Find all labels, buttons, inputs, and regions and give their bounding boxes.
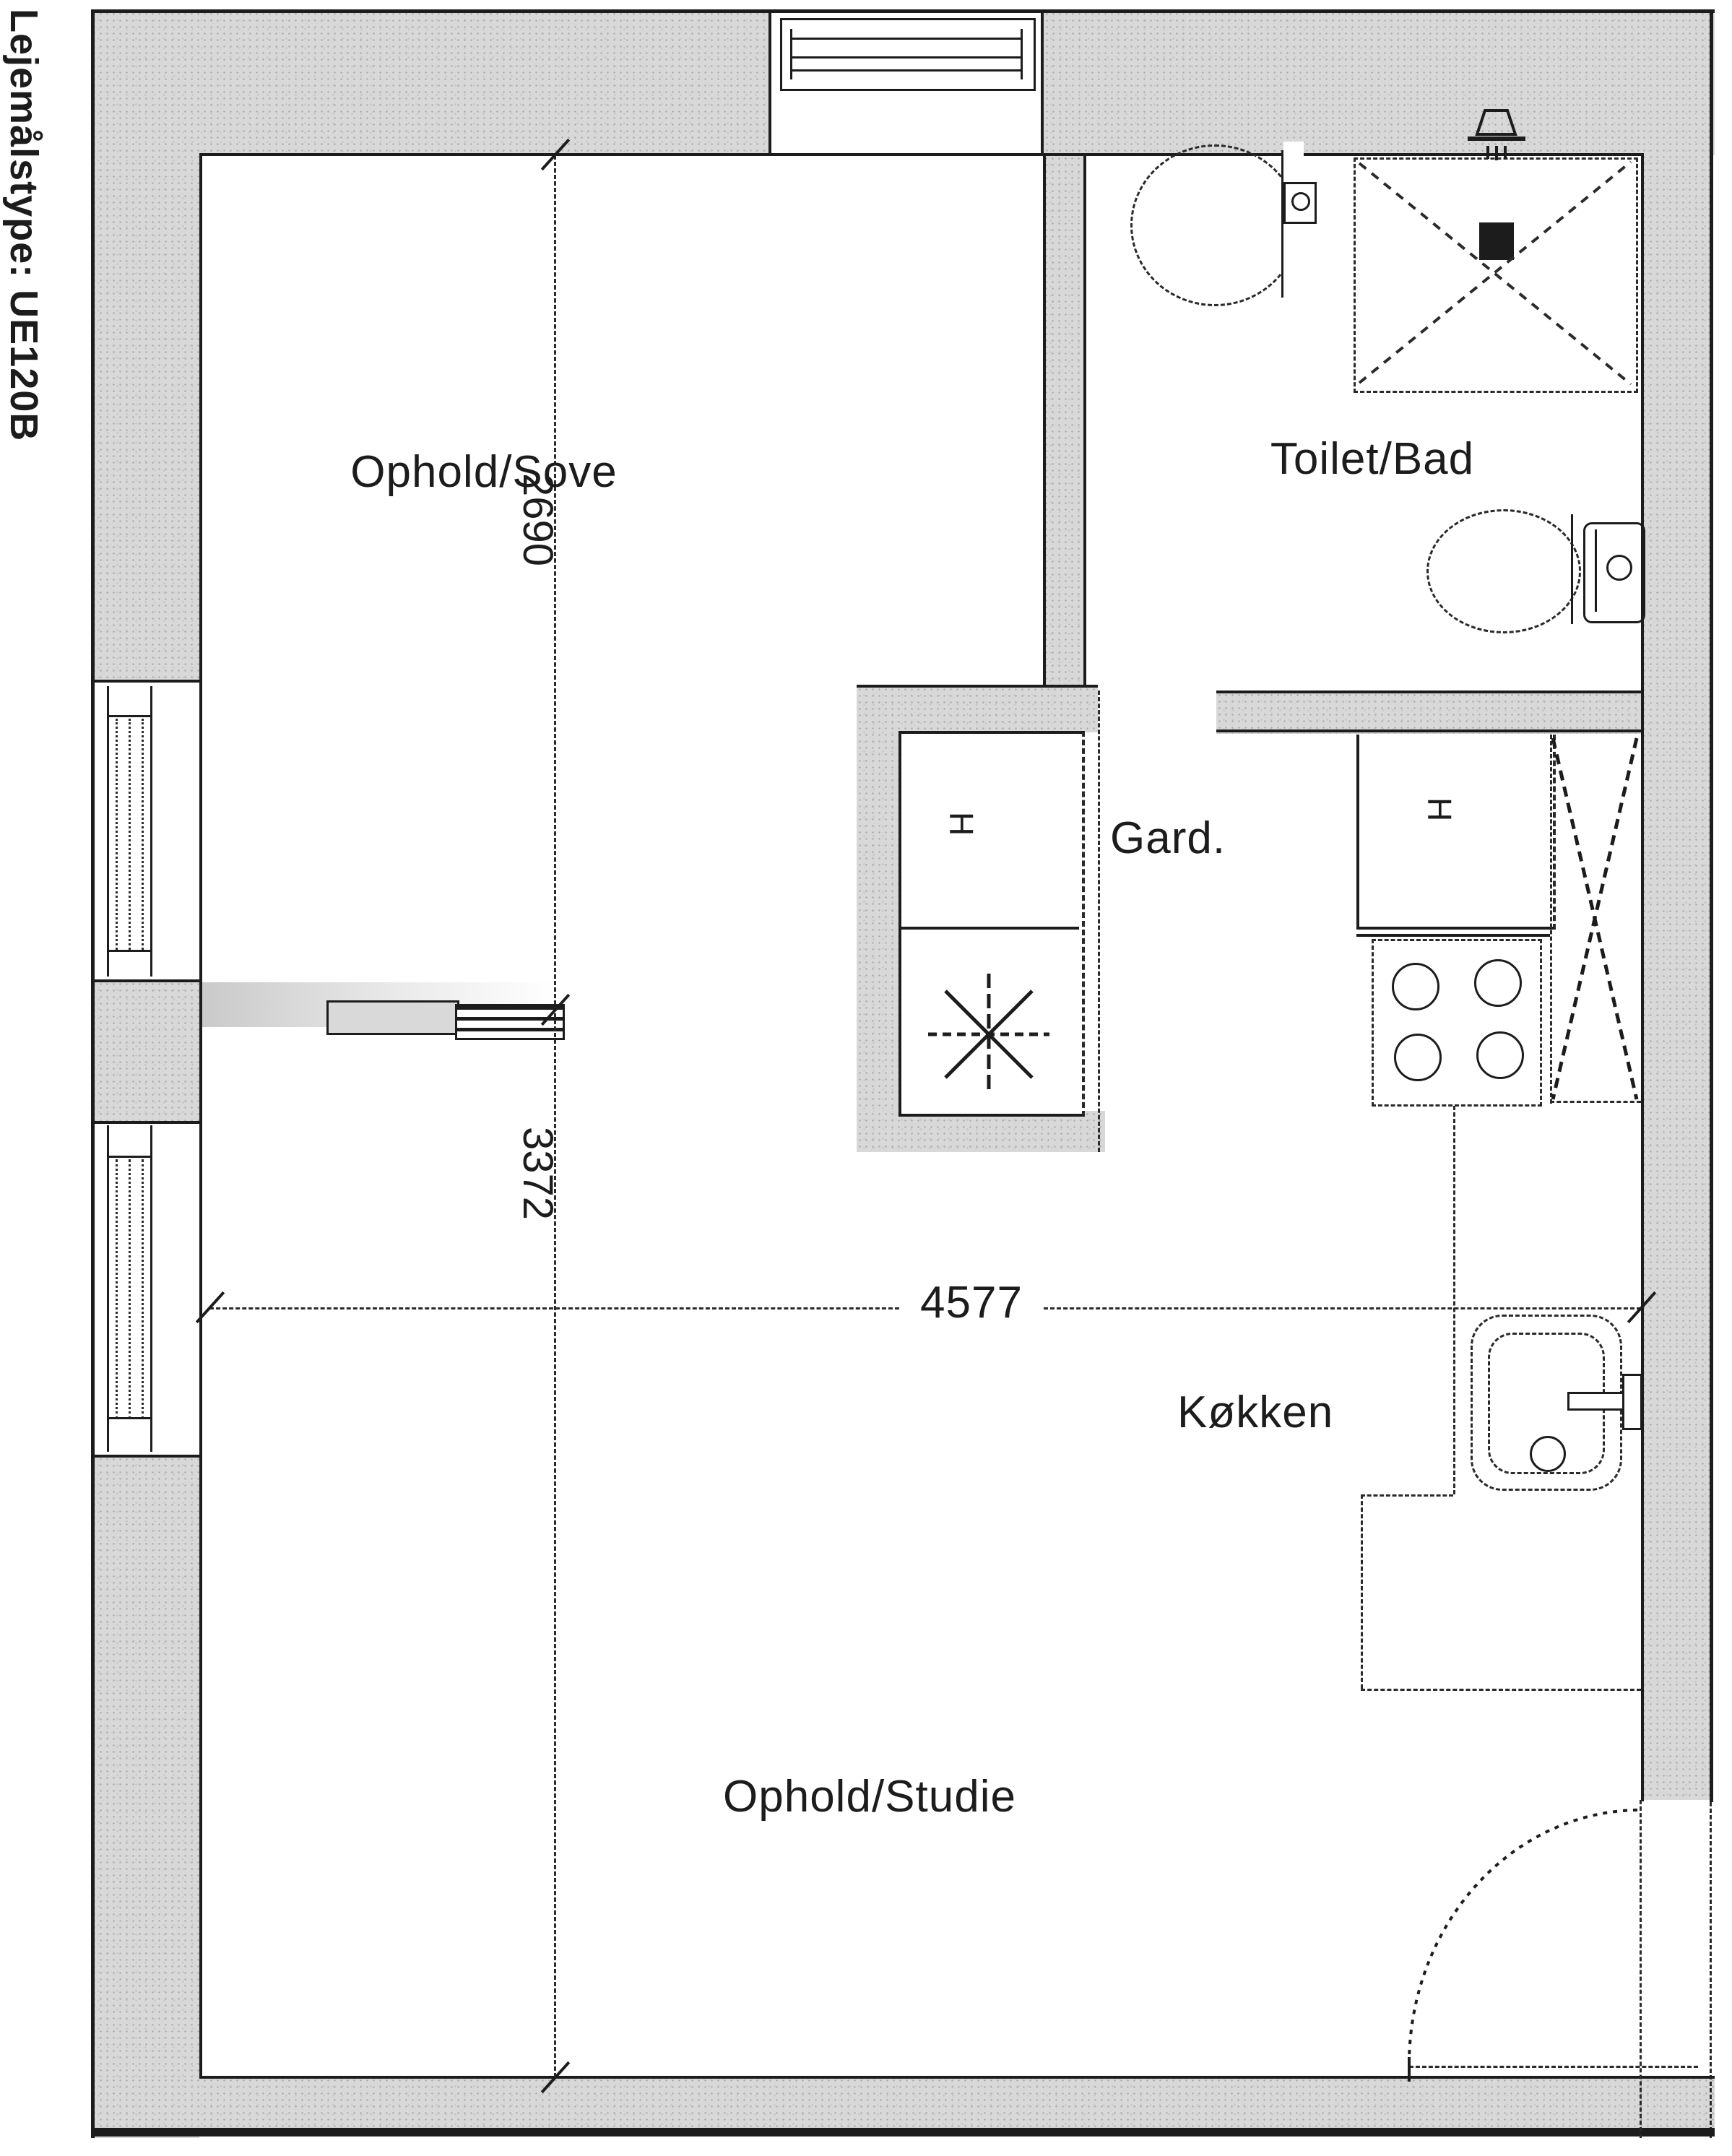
kitchen-faucet-base (1622, 1374, 1642, 1430)
window-left-upper-frame-a (107, 686, 109, 977)
window-left-lower-frame-a (107, 1125, 109, 1452)
dimension-label-3372: 3372 (514, 1127, 562, 1220)
window-top-mullion-left (790, 29, 792, 79)
window-left-lower-glazing-1 (116, 1159, 118, 1419)
door-leaf (1409, 2066, 1698, 2068)
wardrobe-wall-top-edge (857, 685, 1098, 688)
wall-bath-bottom (1216, 692, 1641, 734)
tall-cabinet-x-1 (1553, 738, 1637, 1099)
outline-left (91, 9, 95, 2138)
window-left-lower-frame-b (150, 1125, 152, 1452)
wall-bath-partition (1043, 155, 1086, 688)
window-top-jamb-right (1041, 11, 1044, 155)
floor-plan: Ophold/Sove Toilet/Bad Gard. Køkken Opho… (0, 0, 1732, 2156)
tall-cabinet-bottom-edge (1550, 1101, 1641, 1103)
stove (1372, 939, 1542, 1107)
wardrobe-cabinet (899, 731, 1085, 1117)
shower-tray (1354, 157, 1638, 393)
window-top-frame (780, 18, 1036, 91)
washbasin-tap-knob (1291, 192, 1310, 211)
stove-burner-2 (1474, 959, 1522, 1007)
window-left-lower-glazing-2 (129, 1159, 131, 1419)
room-label-bathroom: Toilet/Bad (1221, 433, 1524, 485)
window-upper-sill-bottom (91, 979, 201, 982)
window-top-mullion-right (1021, 29, 1023, 79)
wall-top-right (1044, 11, 1715, 155)
wall-bottom (91, 2077, 1715, 2132)
room-label-living-sleep: Ophold/Sove (289, 446, 679, 498)
door-jamb-line (1640, 1800, 1642, 2138)
wardrobe-edge-dashed (1098, 690, 1100, 1152)
dimension-label-4577: 4577 (899, 1277, 1044, 1328)
room-label-wardrobe: Gard. (1110, 813, 1226, 864)
bath-bottom-wall-bottom-edge (1216, 730, 1641, 732)
inner-edge-left (199, 153, 202, 2079)
radiator-right (455, 1004, 565, 1040)
window-left-upper-glazing-2 (129, 719, 131, 950)
wall-left-pier (91, 981, 199, 1122)
window-left-lower-recess (94, 1122, 199, 1456)
window-left-upper-frame-b (150, 686, 152, 977)
window-top-glazing-1 (790, 38, 1023, 40)
toilet-flush-button (1606, 555, 1632, 581)
kitchen-cabinet-marker: H (1420, 797, 1459, 821)
room-label-living-study: Ophold/Studie (672, 1771, 1068, 1822)
window-top-glazing-3 (790, 69, 1023, 72)
wardrobe-wall-left (857, 686, 899, 1152)
wardrobe-cabinet-divider (901, 927, 1079, 930)
page-title: Lejemålstype: UE120B (1, 9, 46, 441)
wall-left-upper (91, 11, 199, 683)
kitchen-sink-drain (1530, 1436, 1566, 1472)
window-left-upper-cap-top (107, 715, 152, 717)
counter-edge-3 (1361, 1494, 1363, 1689)
window-left-upper-glazing-3 (142, 719, 144, 950)
outline-bottom-edge (91, 2128, 1715, 2136)
stove-burner-4 (1476, 1031, 1524, 1079)
wardrobe-cabinet-marker: H (942, 812, 981, 836)
bath-partition-edge-left (1043, 155, 1046, 688)
window-lower-sill-bottom (91, 1455, 201, 1458)
bath-bottom-wall-top-edge (1216, 690, 1641, 693)
room-label-kitchen: Køkken (1177, 1387, 1333, 1438)
outline-top (91, 9, 1715, 13)
shower-drain (1479, 222, 1514, 260)
kitchen-upper-cabinet (1356, 735, 1556, 930)
tall-cabinet-x-2 (1553, 738, 1637, 1099)
window-left-lower-glazing-3 (142, 1159, 144, 1419)
bath-partition-edge-right (1083, 155, 1086, 688)
outline-right-door-gap (1710, 1802, 1712, 2138)
outline-right (1710, 9, 1713, 1802)
radiator-left (326, 1000, 459, 1035)
window-left-lower-cap-bottom (107, 1417, 152, 1419)
dimension-line-horizontal-right (1044, 1307, 1641, 1309)
dimension-label-2690: 2690 (514, 473, 562, 566)
toilet-bowl (1426, 509, 1581, 633)
inner-edge-top (199, 153, 1642, 156)
wardrobe-wall-bottom (857, 1111, 1105, 1152)
window-upper-sill-top (91, 680, 201, 683)
window-left-upper-glazing-1 (116, 719, 118, 950)
window-lower-sill-top (91, 1121, 201, 1124)
stove-burner-1 (1392, 963, 1439, 1010)
window-top-glazing-2 (790, 56, 1023, 59)
dimension-line-horizontal-left (209, 1307, 899, 1309)
dimension-line-vertical (554, 155, 556, 2077)
tall-cabinet-left-edge (1550, 735, 1552, 1104)
window-left-lower-cap-top (107, 1156, 152, 1158)
counter-edge-4 (1361, 1689, 1641, 1691)
washbasin-flat-edge (1281, 150, 1283, 298)
inner-edge-right (1641, 153, 1644, 1801)
counter-edge-2 (1361, 1494, 1453, 1497)
washbasin (1130, 144, 1299, 306)
window-top-jamb-left (768, 11, 771, 155)
window-left-upper-recess (94, 683, 199, 979)
stove-burner-3 (1394, 1034, 1442, 1081)
counter-edge-1 (1453, 1106, 1455, 1494)
kitchen-cabinet-divider (1356, 934, 1550, 937)
toilet-tank-line (1595, 529, 1597, 612)
window-left-upper-cap-bottom (107, 950, 152, 952)
toilet-seat-edge (1571, 514, 1573, 624)
door-leaf-tip (1408, 2057, 1411, 2082)
entrance-door-arc (1409, 1810, 1640, 2064)
inner-edge-bottom (199, 2076, 1715, 2079)
wall-left-lower (91, 1456, 199, 2138)
wall-right (1641, 11, 1713, 1800)
